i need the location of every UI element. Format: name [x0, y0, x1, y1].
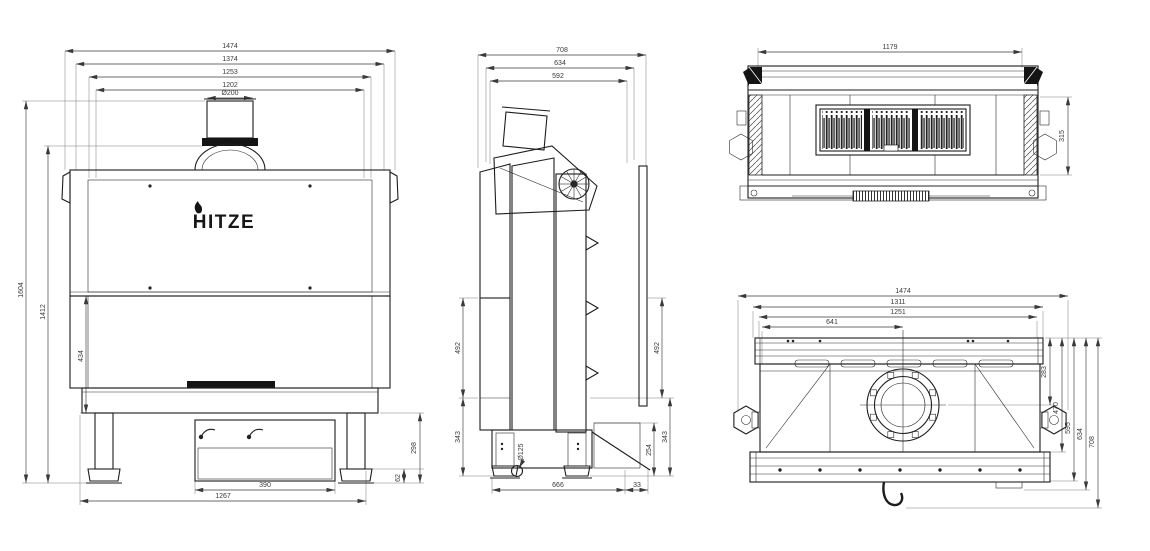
tab-right	[1040, 111, 1049, 125]
dim-front-base-height: 298	[411, 442, 418, 454]
ear-right	[390, 172, 398, 203]
convection-grille	[816, 105, 970, 155]
dim-front-frame-width: 1253	[222, 69, 238, 76]
dome-outer	[195, 144, 265, 170]
dim-front-overall-height: 1604	[18, 282, 25, 298]
dome-inner	[202, 150, 258, 170]
hitze-logo: HITZE	[193, 201, 255, 233]
center-bar	[853, 191, 929, 201]
dim-front-body-height: 1412	[40, 304, 47, 320]
grille-divider-2	[912, 109, 918, 151]
rear-compartment	[594, 423, 640, 468]
side-extension-lines	[459, 55, 674, 494]
dim-front-opening-width: 1202	[222, 82, 238, 89]
top-view: 1179 315	[730, 44, 1072, 201]
rear-view: 1474 1311 1251 641 283 470 595 634 708	[734, 288, 1102, 508]
front-body: HITZE	[62, 99, 398, 483]
leg-left	[95, 413, 113, 469]
dim-front-drawer-width: 390	[259, 482, 271, 489]
dim-rear-flue-center-depth: 283	[1041, 366, 1048, 378]
handle-hook	[883, 482, 902, 505]
leg-right	[347, 413, 365, 469]
bracket-hook-3	[586, 366, 598, 380]
dim-rear-flue-center-from-left: 641	[826, 319, 838, 326]
dim-front-overall-width: 1474	[222, 43, 238, 50]
dim-rear-body-width: 1311	[890, 299, 905, 306]
dim-side-upper-height-left: 492	[455, 342, 462, 354]
tab-left	[737, 111, 746, 125]
ear-left	[62, 172, 70, 203]
dim-front-glass-height: 434	[78, 350, 85, 362]
column-left-hatched	[749, 95, 762, 175]
body-lower	[70, 296, 390, 388]
dim-top-grille-width: 1179	[882, 44, 897, 51]
front-extension-lines	[22, 51, 424, 505]
column-right-hatched	[1024, 95, 1037, 175]
ash-lip-diagonal	[592, 432, 650, 470]
grille-section-2	[872, 111, 910, 149]
corner-screw-right	[1029, 190, 1035, 196]
rear-rail	[639, 166, 647, 406]
dim-side-ledge-height: 254	[646, 444, 653, 456]
side-leg-front	[496, 433, 514, 466]
side-body	[480, 107, 650, 478]
wing-left	[743, 68, 749, 86]
side-view: 708 634 592 492 343 492 343 254 666 33 Ø…	[455, 47, 674, 494]
glass-panel	[88, 180, 372, 292]
dim-front-body-width: 1374	[222, 56, 238, 63]
dim-rear-inner-width: 1251	[890, 309, 906, 316]
dim-rear-overall-depth: 708	[1089, 436, 1096, 448]
rear-foot-tab	[996, 482, 1022, 488]
bracket-hook-2	[586, 301, 598, 315]
dim-side-lower-height-right: 343	[662, 431, 669, 443]
side-mid-slab	[512, 158, 554, 430]
side-front-lower-panel	[480, 298, 510, 430]
bracket-hook-1	[586, 236, 598, 250]
dim-side-inner-depth: 592	[552, 73, 564, 80]
rear-bottom-band	[750, 452, 1050, 482]
front-grate	[187, 381, 275, 388]
brand-logo-text: HITZE	[193, 212, 255, 233]
chimney-flange	[202, 138, 258, 146]
grille-section-3	[920, 111, 964, 149]
wing-right	[1037, 68, 1043, 86]
dim-rear-overall-width: 1474	[895, 288, 911, 295]
rear-body	[734, 330, 1066, 505]
body-upper	[70, 170, 390, 296]
technical-drawing-sheet: 1474 1374 1253 1202 Ø200 1604 1412 434 3…	[0, 0, 1150, 551]
dim-side-upper-height-right: 492	[654, 342, 661, 354]
ash-drawer	[195, 420, 335, 481]
front-view: 1474 1374 1253 1202 Ø200 1604 1412 434 3…	[18, 43, 424, 505]
flue-outlet	[860, 330, 946, 452]
rear-extension-lines	[738, 300, 1102, 508]
grille-section-1	[822, 111, 862, 149]
dim-front-base-width: 1267	[215, 493, 231, 500]
side-chimney-collar	[503, 112, 547, 150]
dim-front-foot-height: 62	[395, 474, 402, 482]
dim-side-overall-depth: 708	[556, 47, 568, 54]
dim-side-body-depth: 634	[554, 60, 566, 67]
dim-rear-body-depth: 634	[1077, 428, 1084, 440]
top-body	[730, 66, 1057, 201]
hex-knob-rear-left	[734, 406, 758, 434]
foot-left	[88, 469, 120, 481]
dim-side-lower-height-left: 343	[455, 431, 462, 443]
dim-front-flue-diameter: Ø200	[221, 90, 238, 97]
side-rear-slab	[556, 174, 586, 432]
dim-top-grille-depth: 315	[1059, 130, 1066, 142]
grille-divider-1	[864, 109, 870, 151]
dim-side-base-depth: 666	[552, 482, 564, 489]
side-dimensions: 708 634 592 492 343 492 343 254 666 33 Ø…	[455, 47, 670, 490]
foot-right	[340, 469, 372, 481]
chimney-collar	[207, 101, 253, 138]
dim-side-intake-diameter: Ø125	[518, 443, 525, 460]
front-dimensions: 1474 1374 1253 1202 Ø200 1604 1412 434 3…	[18, 43, 420, 501]
grille-latch	[884, 145, 898, 151]
fireplace-technical-drawing: 1474 1374 1253 1202 Ø200 1604 1412 434 3…	[0, 0, 1150, 551]
corner-screw-left	[751, 190, 757, 196]
dim-side-rear-offset: 33	[633, 482, 641, 489]
